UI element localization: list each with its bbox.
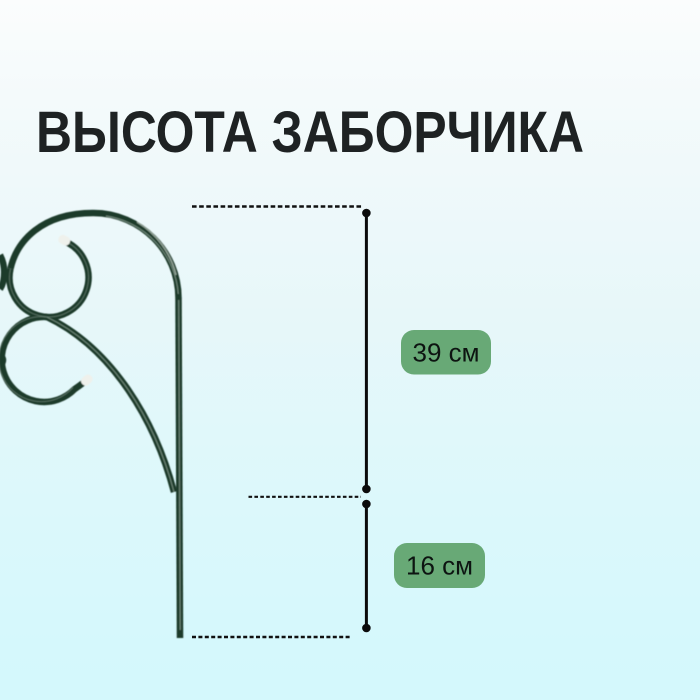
svg-text:39 см: 39 см bbox=[412, 338, 479, 368]
svg-text:ВЫСОТА ЗАБОРЧИКА: ВЫСОТА ЗАБОРЧИКА bbox=[36, 100, 584, 165]
svg-text:16 см: 16 см bbox=[406, 551, 473, 581]
